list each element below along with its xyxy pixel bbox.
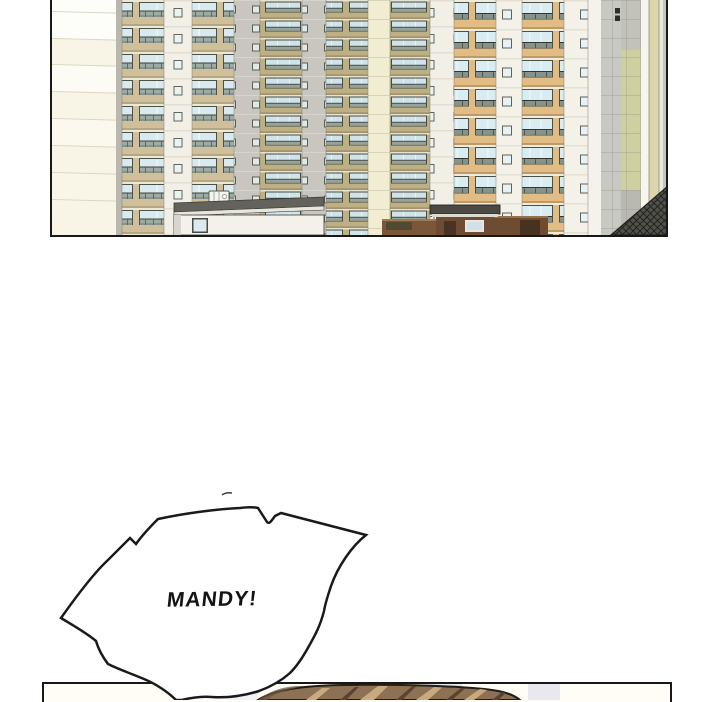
building-signage [615,8,620,14]
comic-page: { "comic": { "speech_bubble": { "text": … [0,0,720,700]
panel-apartment-scene [50,0,668,237]
building-corner-edge [116,0,122,235]
cream-side-wall [52,0,116,235]
speech-bubble-text: MANDY! [149,586,276,614]
stray-ink-mark [222,493,232,495]
apartment-buildings-illustration [52,0,666,235]
tower-strips [122,0,601,235]
gatehouse-roof [430,205,500,214]
